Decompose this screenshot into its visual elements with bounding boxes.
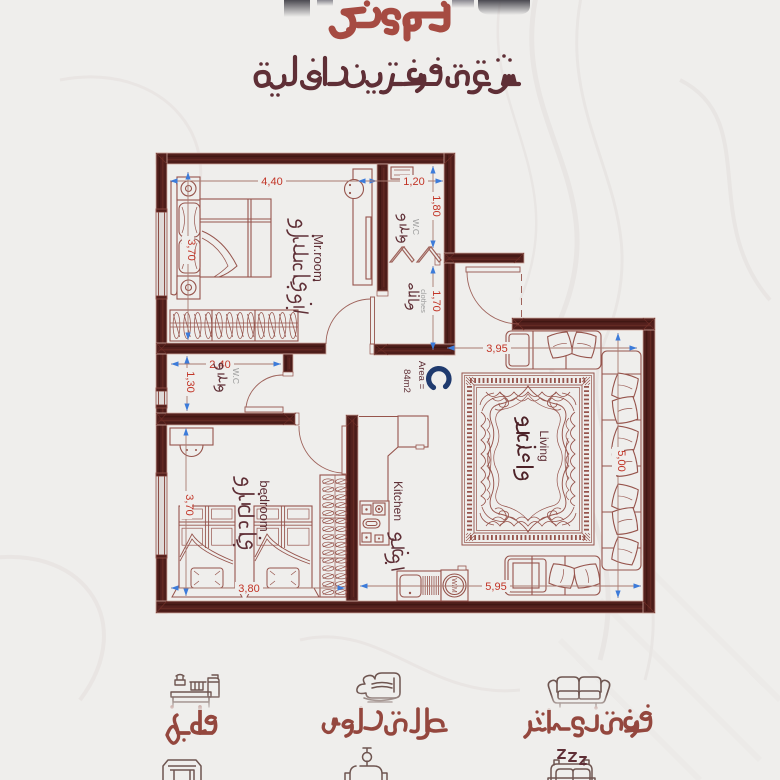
svg-text:1,70: 1,70	[430, 290, 442, 311]
svg-text:3,70: 3,70	[183, 494, 195, 515]
svg-text:clothes: clothes	[419, 289, 428, 313]
svg-text:W.C: W.C	[231, 368, 241, 384]
svg-text:5,95: 5,95	[485, 581, 506, 593]
svg-text:bedroom: bedroom	[257, 480, 272, 531]
svg-text:5,00: 5,00	[615, 450, 627, 471]
svg-text:3,70: 3,70	[185, 239, 197, 260]
svg-text:3,95: 3,95	[486, 343, 507, 355]
svg-text:Living: Living	[537, 430, 551, 461]
svg-text:Mr.room: Mr.room	[311, 234, 326, 282]
svg-text:4,40: 4,40	[261, 176, 282, 188]
svg-text:Kitchen: Kitchen	[391, 481, 405, 521]
svg-text:1,20: 1,20	[403, 176, 424, 188]
svg-text:Area =: Area =	[416, 361, 427, 390]
svg-text:84m2: 84m2	[401, 369, 412, 393]
svg-text:1,80: 1,80	[430, 195, 442, 216]
svg-text:W.C: W.C	[411, 219, 421, 235]
svg-text:3,80: 3,80	[238, 583, 259, 595]
svg-text:1,30: 1,30	[184, 371, 196, 392]
